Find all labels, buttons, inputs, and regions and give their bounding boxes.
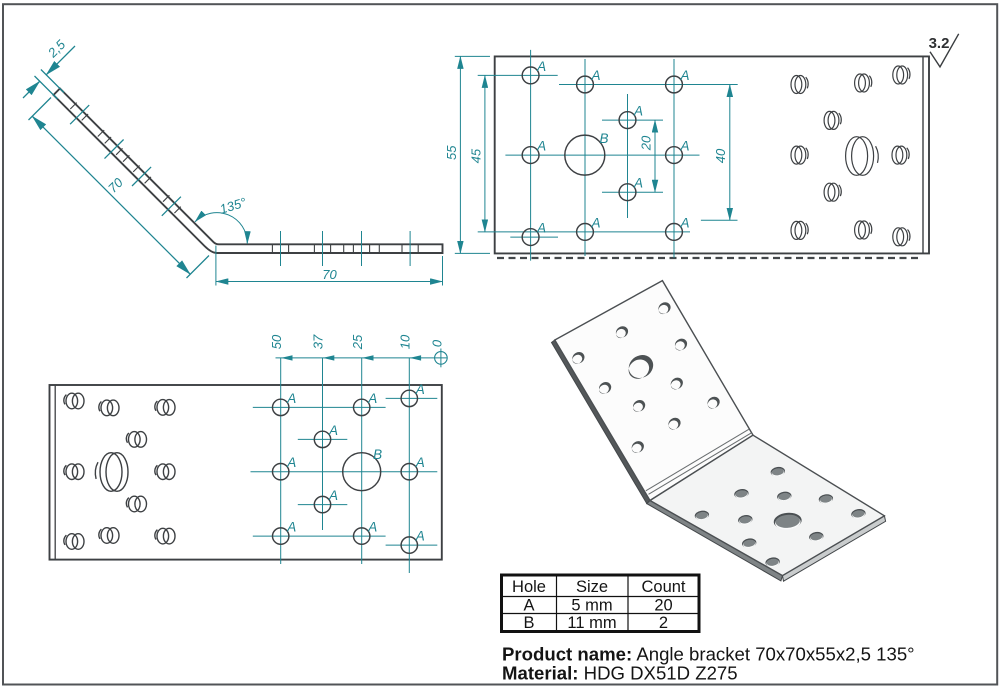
svg-text:A: A (367, 520, 377, 535)
svg-text:Size: Size (576, 578, 608, 596)
svg-text:20: 20 (654, 597, 672, 615)
svg-text:A: A (536, 59, 546, 74)
svg-text:55: 55 (444, 145, 459, 160)
svg-text:A: A (679, 139, 689, 154)
svg-text:2: 2 (659, 614, 668, 632)
svg-text:A: A (286, 391, 296, 406)
svg-text:A: A (633, 176, 643, 191)
svg-text:37: 37 (311, 334, 326, 349)
svg-text:0: 0 (430, 339, 445, 347)
svg-text:40: 40 (713, 148, 728, 163)
svg-text:50: 50 (269, 334, 284, 349)
svg-text:3.2: 3.2 (929, 35, 950, 52)
svg-text:45: 45 (469, 148, 484, 163)
svg-text:B: B (599, 131, 608, 146)
svg-text:5 mm: 5 mm (571, 597, 612, 615)
svg-text:Count: Count (641, 578, 685, 596)
svg-text:A: A (679, 68, 689, 83)
svg-text:A: A (633, 104, 643, 119)
svg-text:A: A (367, 391, 377, 406)
svg-text:A: A (286, 520, 296, 535)
svg-text:A: A (523, 597, 534, 615)
svg-text:A: A (590, 68, 600, 83)
svg-text:A: A (328, 488, 338, 503)
svg-text:Hole: Hole (512, 578, 546, 596)
svg-text:A: A (286, 455, 296, 470)
svg-text:20: 20 (638, 135, 653, 151)
svg-text:A: A (415, 455, 425, 470)
svg-text:A: A (679, 215, 689, 230)
svg-text:A: A (415, 382, 425, 397)
svg-text:B: B (373, 447, 382, 462)
svg-text:A: A (415, 529, 425, 544)
svg-text:A: A (590, 215, 600, 230)
svg-text:A: A (328, 423, 338, 438)
svg-text:A: A (536, 139, 546, 154)
svg-text:Material: HDG DX51D Z275: Material: HDG DX51D Z275 (502, 662, 738, 683)
svg-text:10: 10 (398, 334, 413, 349)
svg-text:70: 70 (322, 267, 337, 282)
svg-text:Product name: Angle bracket 70: Product name: Angle bracket 70x70x55x2,5… (502, 643, 915, 664)
svg-text:11 mm: 11 mm (567, 614, 616, 632)
svg-text:B: B (523, 614, 534, 632)
svg-text:A: A (536, 221, 546, 236)
svg-text:25: 25 (350, 334, 365, 350)
